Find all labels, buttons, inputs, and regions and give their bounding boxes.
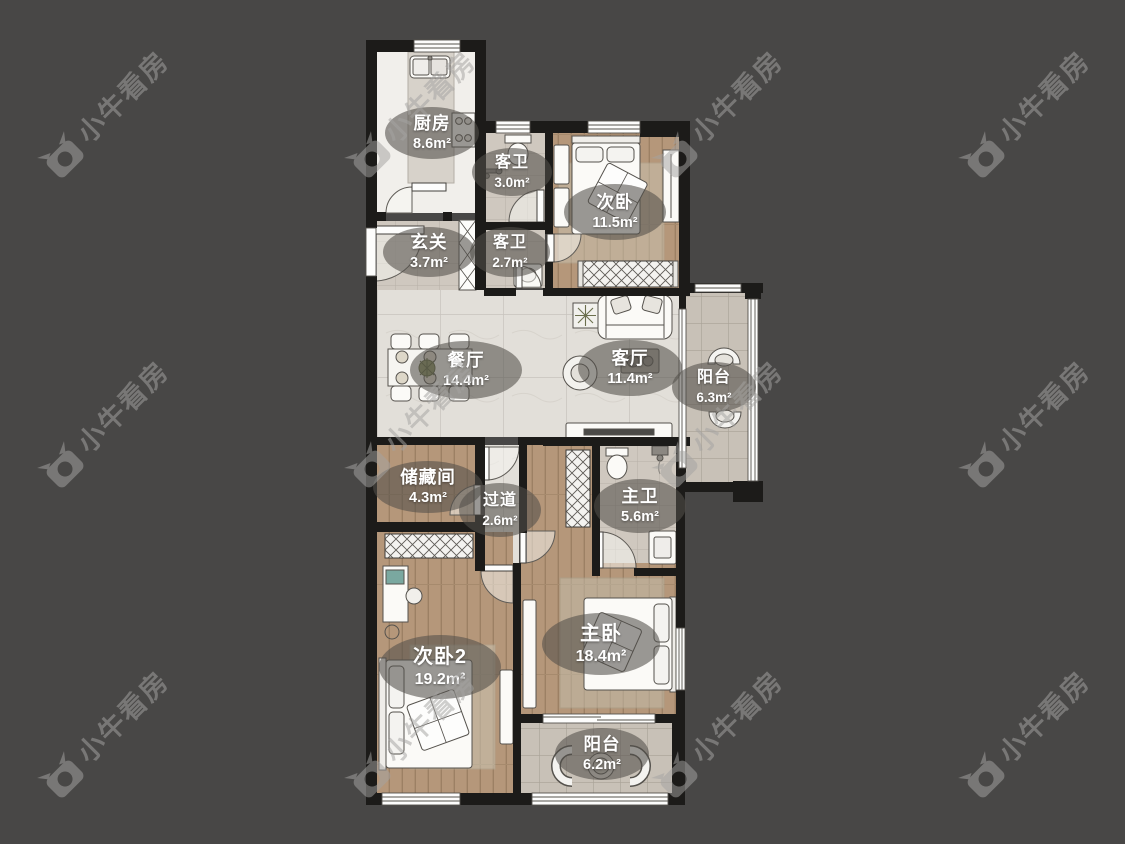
room-label-bedroom-second: 次卧11.5m² (564, 184, 666, 240)
room-area: 2.7m² (492, 254, 527, 272)
room-name: 客卫 (493, 233, 527, 254)
master-balcony-slider (543, 714, 655, 723)
bedroom-second-window (588, 121, 640, 133)
room-label-hallway: 过道2.6m² (459, 483, 541, 537)
room-label-balcony-east: 阳台6.3m² (672, 362, 756, 412)
room-name: 次卧 (597, 191, 634, 214)
kitchen-sink (410, 56, 450, 78)
guest-bath-top-window (496, 121, 530, 133)
master-tv-console (523, 600, 536, 708)
balcony-east-top-window (695, 284, 741, 292)
master-bath-toilet (606, 448, 628, 479)
room-label-living: 客厅11.4m² (578, 340, 682, 396)
kitchen-window (414, 40, 460, 52)
room-area: 19.2m² (415, 670, 466, 691)
room-area: 14.4m² (443, 372, 489, 391)
bedroom-second2-tv-console (500, 670, 513, 744)
master-wardrobe (566, 450, 590, 527)
room-area: 18.4m² (576, 647, 627, 668)
room-label-kitchen: 厨房8.6m² (385, 107, 479, 159)
room-label-master-bedroom: 主卧18.4m² (542, 613, 660, 675)
living-plant-stand (573, 303, 598, 328)
room-label-bedroom-second2: 次卧219.2m² (379, 635, 501, 699)
room-label-entry: 玄关3.7m² (383, 227, 475, 277)
room-name: 主卫 (622, 485, 659, 508)
room-area: 5.6m² (621, 508, 659, 527)
room-label-balcony-south: 阳台6.2m² (555, 728, 649, 780)
room-name: 次卧2 (413, 644, 467, 670)
living-sofa (598, 295, 672, 339)
room-name: 储藏间 (400, 466, 456, 489)
floorplan-drawing (0, 0, 1125, 844)
room-area: 3.0m² (494, 174, 529, 192)
bedroom-second-radiator (578, 261, 678, 287)
room-name: 客卫 (495, 153, 529, 174)
room-name: 过道 (483, 491, 517, 512)
room-label-dining: 餐厅14.4m² (410, 341, 522, 399)
room-name: 玄关 (411, 231, 448, 254)
room-label-guest-bath: 客卫2.7m² (470, 227, 550, 277)
room-area: 4.3m² (409, 489, 447, 508)
room-label-guest-bath-top: 客卫3.0m² (472, 148, 552, 196)
master-bedroom-window (676, 628, 685, 690)
room-area: 8.6m² (413, 135, 451, 154)
room-name: 餐厅 (448, 349, 485, 372)
room-name: 阳台 (697, 368, 731, 389)
bedroom-second-nightstand (554, 145, 569, 184)
room-area: 3.7m² (410, 254, 448, 273)
room-area: 6.3m² (696, 389, 731, 407)
room-name: 客厅 (612, 347, 649, 370)
room-name: 主卧 (580, 621, 622, 647)
bedroom-second2-wardrobe (385, 534, 473, 558)
bedroom-second2-window (382, 793, 460, 805)
room-area: 6.2m² (583, 756, 621, 775)
floorplan-canvas: 厨房8.6m² 客卫3.0m² 次卧11.5m² 玄关3.7m² 客卫2.7m²… (0, 0, 1125, 844)
entry-door-sill (366, 228, 376, 276)
room-area: 2.6m² (482, 512, 517, 530)
room-label-master-bath: 主卫5.6m² (594, 479, 686, 533)
room-name: 阳台 (584, 733, 621, 756)
room-area: 11.4m² (607, 370, 652, 389)
master-bath-vanity (649, 531, 676, 564)
room-area: 11.5m² (592, 214, 637, 233)
room-name: 厨房 (414, 112, 451, 135)
balcony-south-window (532, 793, 668, 805)
